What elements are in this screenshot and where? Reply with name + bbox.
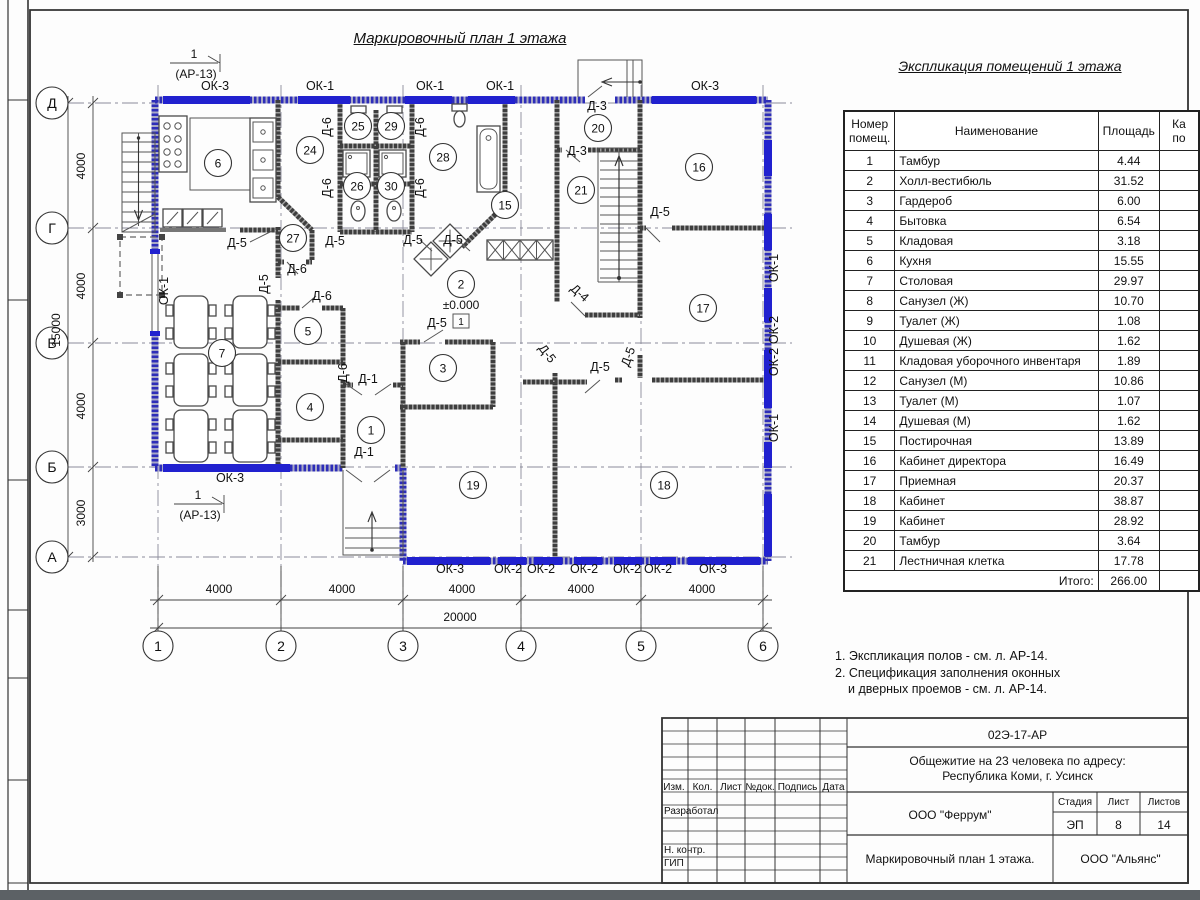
window-label: ОК-1 bbox=[767, 254, 781, 282]
window-label: ОК-3 bbox=[216, 471, 244, 485]
floor-type-mark: 1 bbox=[458, 317, 464, 328]
window-label: ОК-3 bbox=[436, 562, 464, 576]
door-label: Д-6 bbox=[413, 117, 427, 137]
window-label: ОК-1 bbox=[416, 79, 444, 93]
table-row: 11Кладовая уборочного инвентаря1.89 bbox=[844, 351, 1199, 371]
titleblock-col-4: Подпись bbox=[775, 782, 820, 793]
dim-left: 3000 bbox=[74, 499, 88, 526]
doc-number: 02Э-17-АР bbox=[847, 728, 1188, 742]
axis-row-marker-label: Д bbox=[47, 95, 57, 111]
table-row: 5Кладовая3.18 bbox=[844, 231, 1199, 251]
section-marker-num: 1 bbox=[191, 47, 198, 61]
level-mark: ±0.000 bbox=[443, 298, 480, 312]
window-label: ОК-1 bbox=[767, 414, 781, 442]
note-line: и дверных проемов - см. л. АР-14. bbox=[848, 681, 1060, 698]
table-row: 18Кабинет38.87 bbox=[844, 491, 1199, 511]
table-row: 19Кабинет28.92 bbox=[844, 511, 1199, 531]
section-marker-ref: (АР-13) bbox=[175, 67, 216, 81]
window-label: ОК-2 bbox=[613, 562, 641, 576]
axis-col-marker-label: 4 bbox=[517, 638, 525, 654]
project-name-line2: Республика Коми, г. Усинск bbox=[847, 769, 1188, 783]
window-label: ОК-2 bbox=[767, 316, 781, 344]
titleblock-col-1: Кол. bbox=[688, 782, 717, 793]
room-number-label: 26 bbox=[350, 179, 364, 193]
explication-title: Экспликация помещений 1 этажа bbox=[870, 58, 1150, 74]
sink-unit bbox=[250, 118, 276, 202]
table-row: 12Санузел (М)10.86 bbox=[844, 371, 1199, 391]
sheet-number: 8 bbox=[1097, 818, 1140, 832]
bathtub bbox=[477, 126, 500, 192]
window-label: ОК-2 bbox=[494, 562, 522, 576]
dim-bottom: 4000 bbox=[329, 582, 356, 596]
explication-table-wrap: Номер помещ.НаименованиеПлощадьКа по 1Та… bbox=[843, 110, 1200, 592]
dim-bottom: 4000 bbox=[206, 582, 233, 596]
section-marker-num: 1 bbox=[195, 488, 202, 502]
section-marker-ref: (АР-13) bbox=[179, 508, 220, 522]
titleblock-col-3: №док. bbox=[745, 782, 775, 793]
table-row: 13Туалет (М)1.07 bbox=[844, 391, 1199, 411]
room-number-label: 28 bbox=[436, 150, 450, 164]
window-label: ОК-3 bbox=[691, 79, 719, 93]
sheet-label: Лист bbox=[1097, 797, 1140, 808]
titleblock-role-1: Н. контр. bbox=[664, 845, 746, 856]
org-name: ООО "Феррум" bbox=[847, 808, 1053, 822]
dim-bottom: 4000 bbox=[449, 582, 476, 596]
room-number-label: 6 bbox=[215, 156, 222, 170]
project-name-line1: Общежитие на 23 человека по адресу: bbox=[847, 754, 1188, 768]
axis-col-marker-label: 6 bbox=[759, 638, 767, 654]
entrance-porch-bottom bbox=[343, 470, 403, 555]
notes: 1. Экспликация полов - см. л. АР-14.2. С… bbox=[835, 648, 1060, 698]
door-label: Д-4 bbox=[568, 281, 592, 305]
window-label: ОК-2 bbox=[570, 562, 598, 576]
door-label: Д-6 bbox=[320, 117, 334, 137]
room-number-label: 21 bbox=[574, 183, 588, 197]
axis-col-marker-label: 1 bbox=[154, 638, 162, 654]
window-label: ОК-3 bbox=[201, 79, 229, 93]
window-label: ОК-3 bbox=[699, 562, 727, 576]
dim-left: 4000 bbox=[74, 392, 88, 419]
door-label: Д-1 bbox=[358, 372, 378, 386]
org2-name: ООО "Альянс" bbox=[1053, 852, 1188, 866]
table-row: 6Кухня15.55 bbox=[844, 251, 1199, 271]
room-number-label: 7 bbox=[219, 346, 226, 360]
window-label: ОК-1 bbox=[486, 79, 514, 93]
table-row: 15Постирочная13.89 bbox=[844, 431, 1199, 451]
axis-col-marker-label: 5 bbox=[637, 638, 645, 654]
drawing-sheet: { "plan": { "title": "Маркировочный план… bbox=[0, 0, 1200, 900]
table-row: 2Холл-вестибюль31.52 bbox=[844, 171, 1199, 191]
axis-row-marker-label: А bbox=[47, 549, 57, 565]
explication-header-2: Площадь bbox=[1098, 111, 1159, 151]
titleblock-col-2: Лист bbox=[717, 782, 745, 793]
titleblock-col-5: Дата bbox=[820, 782, 847, 793]
explication-table: Номер помещ.НаименованиеПлощадьКа по 1Та… bbox=[843, 110, 1200, 592]
door-label: Д-3 bbox=[587, 99, 607, 113]
table-row: 4Бытовка6.54 bbox=[844, 211, 1199, 231]
room-number-label: 19 bbox=[466, 478, 480, 492]
axis-col-marker-label: 2 bbox=[277, 638, 285, 654]
door-label: Д-5 bbox=[427, 316, 447, 330]
titleblock-role-0: Разработал bbox=[664, 806, 746, 817]
axis-row-marker-label: Б bbox=[47, 459, 56, 475]
room-number-label: 20 bbox=[591, 121, 605, 135]
laundry-tray bbox=[414, 224, 467, 276]
stage-value: ЭП bbox=[1053, 818, 1097, 832]
door-label: Д-5 bbox=[227, 236, 247, 250]
room-number-label: 17 bbox=[696, 301, 710, 315]
axis-col-marker-label: 3 bbox=[399, 638, 407, 654]
room-number-label: 18 bbox=[657, 478, 671, 492]
door-label: Д-3 bbox=[567, 144, 587, 158]
plan-labels: ОК-3ОК-1ОК-1ОК-1ОК-3ОК-3ОК-3ОК-2ОК-2ОК-2… bbox=[36, 47, 781, 661]
room-number-label: 4 bbox=[307, 400, 314, 414]
explication-header-1: Наименование bbox=[895, 111, 1098, 151]
serving-counter bbox=[160, 209, 226, 230]
room-number-label: 27 bbox=[286, 231, 300, 245]
stage-label: Стадия bbox=[1053, 797, 1097, 808]
stove bbox=[159, 116, 187, 172]
internal-stair bbox=[598, 148, 638, 282]
table-row: 7Столовая29.97 bbox=[844, 271, 1199, 291]
table-total-row: Итого:266.00 bbox=[844, 571, 1199, 592]
room-number-label: 5 bbox=[305, 324, 312, 338]
explication-header-3: Ка по bbox=[1159, 111, 1199, 151]
entrance-porch-top bbox=[578, 60, 642, 97]
titleblock-role-2: ГИП bbox=[664, 858, 746, 869]
table-row: 1Тамбур4.44 bbox=[844, 151, 1199, 171]
window-label: ОК-2 bbox=[527, 562, 555, 576]
window-label: ОК-1 bbox=[157, 277, 171, 305]
note-line: 1. Экспликация полов - см. л. АР-14. bbox=[835, 648, 1060, 665]
door-label: Д-6 bbox=[336, 363, 350, 383]
room-number-label: 1 bbox=[368, 423, 375, 437]
room-number-label: 3 bbox=[440, 361, 447, 375]
door-label: Д-5 bbox=[590, 360, 610, 374]
table-row: 17Приемная20.37 bbox=[844, 471, 1199, 491]
door-label: Д-1 bbox=[354, 445, 374, 459]
dim-left: 4000 bbox=[74, 272, 88, 299]
table-row: 21Лестничная клетка17.78 bbox=[844, 551, 1199, 571]
dim-bottom: 4000 bbox=[568, 582, 595, 596]
room-number-label: 25 bbox=[351, 119, 365, 133]
table-row: 16Кабинет директора16.49 bbox=[844, 451, 1199, 471]
table-row: 3Гардероб6.00 bbox=[844, 191, 1199, 211]
window-label: ОК-2 bbox=[767, 348, 781, 376]
dim-bottom: 4000 bbox=[689, 582, 716, 596]
door-label: Д-5 bbox=[257, 274, 271, 294]
plan-title: Маркировочный план 1 этажа bbox=[290, 30, 630, 47]
door-label: Д-5 bbox=[443, 233, 463, 247]
axis-row-marker-label: Г bbox=[48, 220, 56, 236]
note-line: 2. Спецификация заполнения оконных bbox=[835, 665, 1060, 682]
dim-bottom-total: 20000 bbox=[443, 610, 477, 624]
room-number-label: 2 bbox=[458, 277, 465, 291]
table-row: 10Душевая (Ж)1.62 bbox=[844, 331, 1199, 351]
door-label: Д-5 bbox=[536, 342, 559, 366]
explication-header-0: Номер помещ. bbox=[844, 111, 895, 151]
window-label: ОК-1 bbox=[306, 79, 334, 93]
door-label: Д-5 bbox=[325, 234, 345, 248]
window-label: ОК-2 bbox=[644, 562, 672, 576]
laundry-counter bbox=[487, 240, 553, 260]
table-row: 8Санузел (Ж)10.70 bbox=[844, 291, 1199, 311]
drawing-title: Маркировочный план 1 этажа. bbox=[847, 852, 1053, 866]
dim-left-total: 15000 bbox=[49, 313, 63, 347]
table-row: 14Душевая (М)1.62 bbox=[844, 411, 1199, 431]
dim-left: 4000 bbox=[74, 152, 88, 179]
door-label: Д-6 bbox=[413, 178, 427, 198]
external-stair bbox=[122, 133, 155, 232]
table-row: 9Туалет (Ж)1.08 bbox=[844, 311, 1199, 331]
door-label: Д-6 bbox=[312, 289, 332, 303]
room-number-label: 30 bbox=[384, 179, 398, 193]
door-label: Д-5 bbox=[618, 345, 638, 368]
room-number-label: 24 bbox=[303, 143, 317, 157]
scan-edge-strip bbox=[0, 890, 1200, 900]
room-number-label: 15 bbox=[498, 198, 512, 212]
sheets-label: Листов bbox=[1140, 797, 1188, 808]
table-row: 20Тамбур3.64 bbox=[844, 531, 1199, 551]
dining-tables bbox=[166, 296, 275, 462]
door-label: Д-5 bbox=[650, 205, 670, 219]
door-label: Д-5 bbox=[403, 233, 423, 247]
room-number-label: 16 bbox=[692, 160, 706, 174]
room-number-label: 29 bbox=[384, 119, 398, 133]
sheets-total: 14 bbox=[1140, 818, 1188, 832]
titleblock-col-0: Изм. bbox=[660, 782, 688, 793]
door-label: Д-6 bbox=[287, 262, 307, 276]
door-label: Д-6 bbox=[320, 178, 334, 198]
